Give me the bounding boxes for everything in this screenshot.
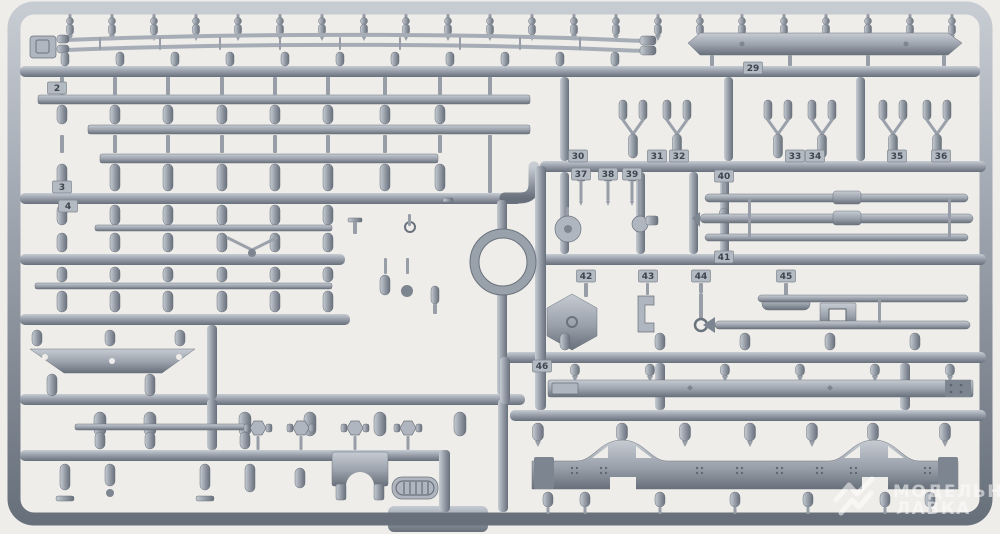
svg-text:43: 43 xyxy=(642,272,655,282)
part-number-tag-33: 33 xyxy=(786,150,805,162)
svg-text:31: 31 xyxy=(651,152,664,162)
sprue-scene: 234293031323334353637383940414243444546 … xyxy=(0,0,1000,534)
svg-text:29: 29 xyxy=(747,64,760,74)
svg-text:46: 46 xyxy=(536,362,549,372)
part-number-tag-38: 38 xyxy=(599,168,618,180)
part-number-tag-44: 44 xyxy=(692,270,711,282)
part-number-tag-41: 41 xyxy=(715,251,734,263)
svg-text:40: 40 xyxy=(718,172,731,182)
part-number-tag-35: 35 xyxy=(888,150,907,162)
svg-text:38: 38 xyxy=(602,170,615,180)
part-number-tag-34: 34 xyxy=(806,150,825,162)
part-number-tag-30: 30 xyxy=(569,150,588,162)
svg-text:33: 33 xyxy=(789,152,802,162)
svg-text:35: 35 xyxy=(891,152,904,162)
part-number-tag-36: 36 xyxy=(932,150,951,162)
part-number-tag-39: 39 xyxy=(623,168,642,180)
part-number-tag-45: 45 xyxy=(777,270,796,282)
svg-text:2: 2 xyxy=(54,84,60,94)
part-number-tag-29: 29 xyxy=(744,62,763,74)
svg-text:4: 4 xyxy=(65,202,71,212)
part-number-tag-31: 31 xyxy=(648,150,667,162)
part-number-tag-46: 46 xyxy=(533,360,552,372)
svg-text:36: 36 xyxy=(935,152,948,162)
part-number-tag-42: 42 xyxy=(577,270,596,282)
part-number-tag-4: 4 xyxy=(59,200,78,212)
part-number-tag-3: 3 xyxy=(53,181,72,193)
part-number-tag-32: 32 xyxy=(670,150,689,162)
svg-text:39: 39 xyxy=(626,170,639,180)
svg-text:30: 30 xyxy=(572,152,585,162)
svg-text:44: 44 xyxy=(695,272,708,282)
part-number-tag-40: 40 xyxy=(715,170,734,182)
svg-text:37: 37 xyxy=(575,170,588,180)
svg-text:42: 42 xyxy=(580,272,593,282)
part-number-tag-43: 43 xyxy=(639,270,658,282)
part-number-tag-2: 2 xyxy=(48,82,67,94)
svg-text:3: 3 xyxy=(59,183,65,193)
svg-text:41: 41 xyxy=(718,253,731,263)
svg-text:32: 32 xyxy=(673,152,686,162)
watermark-line2: ЛАВКА xyxy=(896,499,971,519)
sprue-photo: 234293031323334353637383940414243444546 … xyxy=(0,0,1000,534)
part-number-tag-37: 37 xyxy=(572,168,591,180)
svg-text:34: 34 xyxy=(809,152,822,162)
svg-text:45: 45 xyxy=(780,272,793,282)
